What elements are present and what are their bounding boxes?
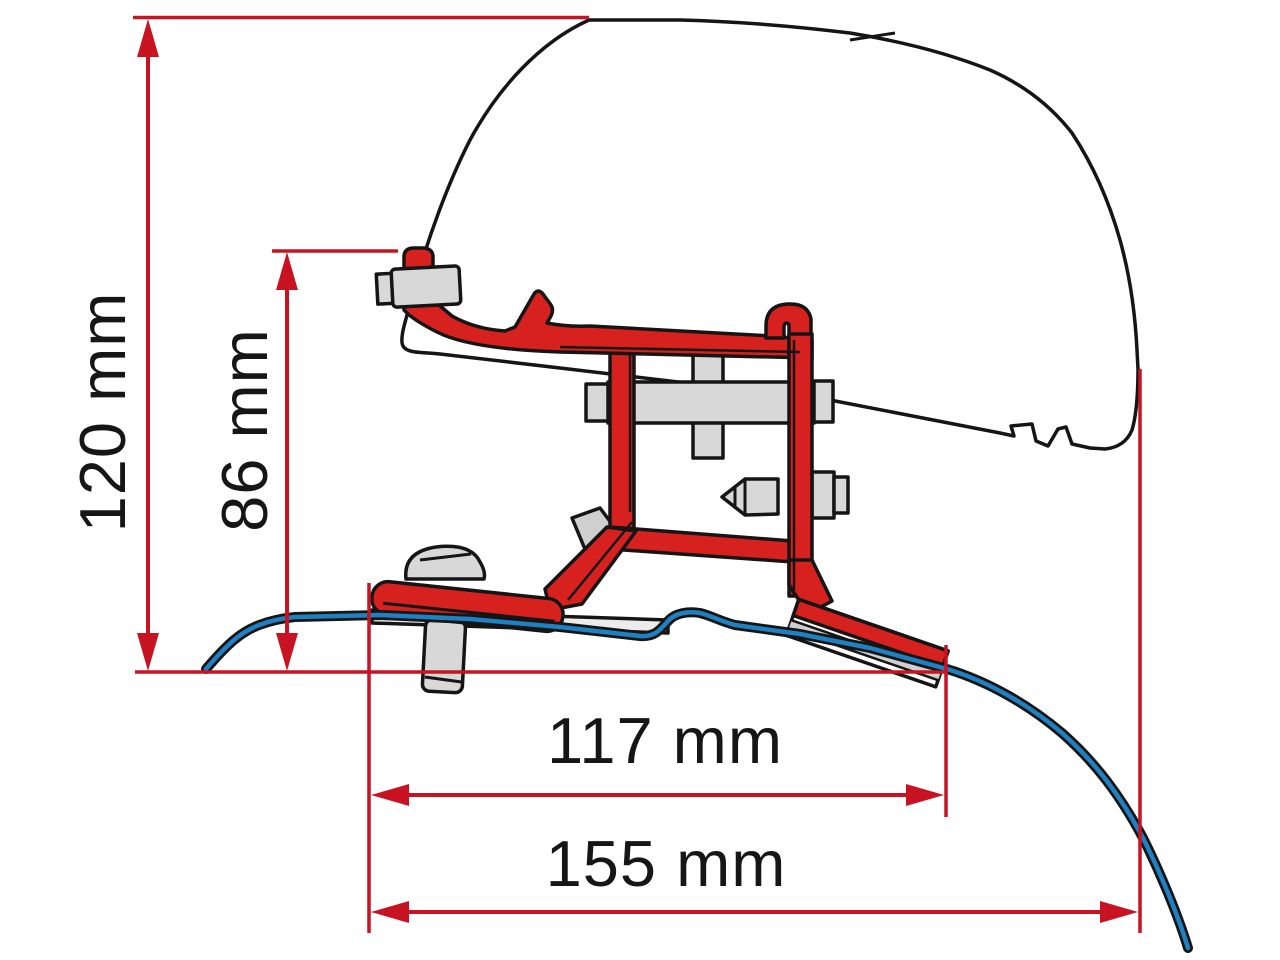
dimension-label-117mm: 117 mm xyxy=(505,702,825,780)
hook-bolt xyxy=(376,266,461,308)
technical-drawing-canvas: 120 mm 86 mm 117 mm 155 mm xyxy=(0,0,1280,960)
phillips-screw-bit xyxy=(722,479,778,515)
dimension-label-120mm: 120 mm xyxy=(64,252,142,572)
side-bolt xyxy=(812,472,848,518)
dimension-155mm xyxy=(371,901,1138,923)
arrow-right-icon xyxy=(906,784,944,806)
frame-bottom-bar xyxy=(610,527,793,562)
frame-right-vertical xyxy=(789,334,812,596)
arrow-down-icon xyxy=(137,633,159,671)
arrow-left-icon xyxy=(371,901,409,923)
arrow-down-icon xyxy=(276,633,298,671)
arrow-left-icon xyxy=(371,784,409,806)
drawing-layers xyxy=(0,0,1280,960)
arrow-up-icon xyxy=(137,19,159,57)
dimension-117mm xyxy=(371,784,944,806)
dimension-label-86mm: 86 mm xyxy=(206,270,284,590)
roof-bolt-pin xyxy=(422,619,466,693)
foot-screw-head xyxy=(406,546,485,579)
arrow-right-icon xyxy=(1100,901,1138,923)
dimension-label-155mm: 155 mm xyxy=(506,825,826,903)
